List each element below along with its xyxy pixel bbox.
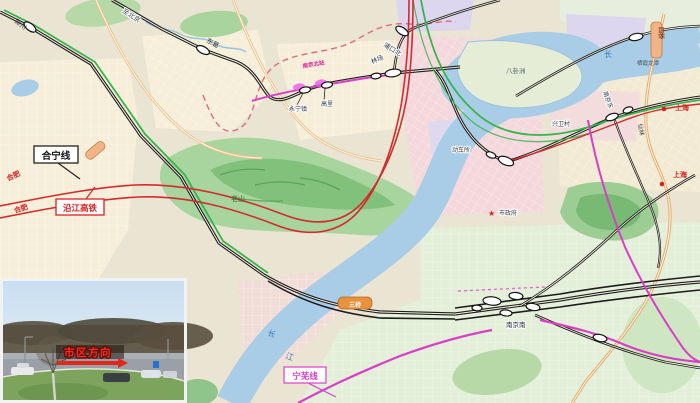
inset-photo [0, 278, 213, 403]
label-nanjingnan: 南京南 [506, 320, 526, 329]
callout-yanjiang-label: 沿江高铁 [62, 203, 98, 214]
label-sanqiao: 三桥 [349, 301, 362, 309]
inset-sign-text: 市区方向 [64, 346, 112, 359]
label-shanghai-2: 上海 [673, 170, 687, 179]
shanghai-dot-1 [662, 107, 667, 112]
label-laoshan: 老山 [231, 194, 245, 203]
label-changjiang-ne: 长 [604, 49, 612, 59]
callout-hening-label: 合宁线 [42, 150, 71, 162]
label-baguazhou: 八卦洲 [506, 66, 526, 75]
inset-photo-content [0, 281, 213, 403]
hill-bottom-right [622, 297, 700, 393]
label-dongchesuo: 动车所 [452, 146, 470, 154]
station-nanjingnan-5 [472, 305, 482, 311]
label-xingweicun: 兴卫村 [552, 120, 570, 128]
photo-blue-sign [153, 361, 159, 368]
map-canvas: 合宁线 沿江高铁 宁芜线 [0, 0, 700, 403]
label-shanghai-1: 上海 [675, 103, 689, 112]
shanghai-dot-2 [660, 182, 665, 187]
zone-lavender-top [396, 0, 474, 32]
label-qixialongtan: 栖霞龙潭 [637, 59, 660, 67]
label-city-hall: 市政府 [499, 209, 517, 217]
label-city-hall-star: ★ [488, 209, 495, 218]
station-linchang-2 [371, 73, 382, 80]
photo-trees-3 [133, 322, 213, 350]
railway-planning-map-screenshot: 合宁线 沿江高铁 宁芜线 [0, 0, 700, 403]
callout-ningwu-label: 宁芜线 [292, 371, 318, 382]
label-yongningzhen: 永宁镇 [289, 105, 307, 113]
label-gaoli: 高里 [321, 100, 333, 108]
label-siqiao: 四桥 [657, 27, 665, 40]
station-nanjingnan-4 [500, 309, 512, 316]
